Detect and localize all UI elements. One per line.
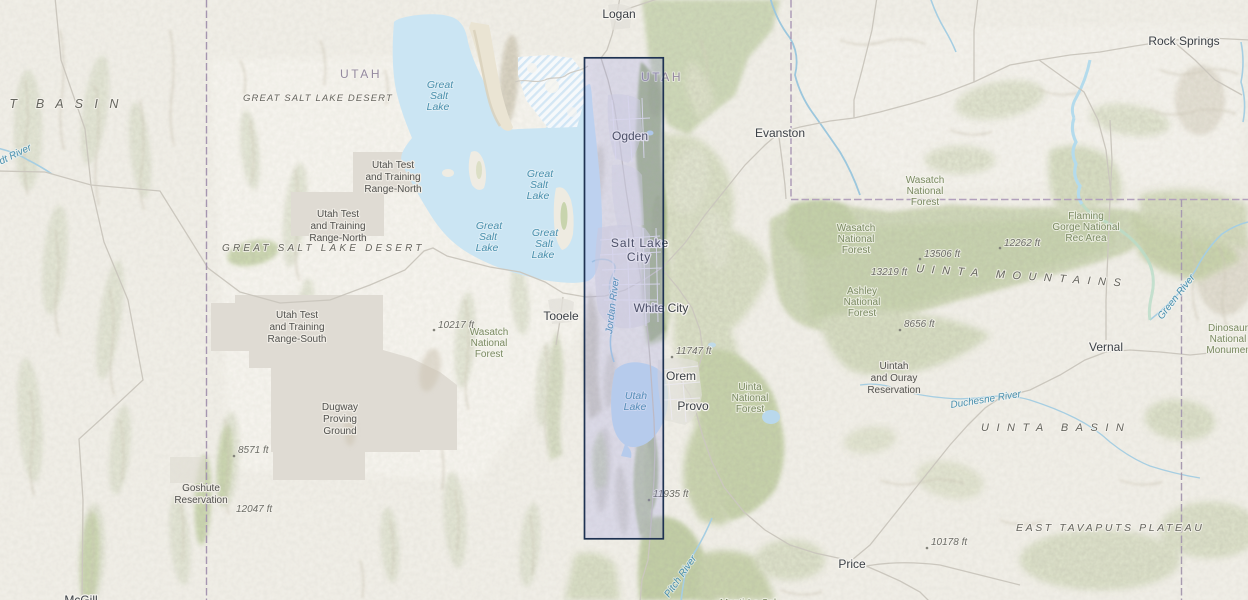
svg-text:Dinosaur: Dinosaur: [1208, 323, 1248, 334]
svg-text:GREAT SALT LAKE DESERT: GREAT SALT LAKE DESERT: [243, 93, 393, 104]
svg-text:Uintah: Uintah: [880, 361, 909, 372]
svg-text:McGill: McGill: [64, 593, 97, 600]
svg-text:Orem: Orem: [666, 369, 696, 383]
svg-text:Forest: Forest: [736, 404, 765, 415]
svg-text:and Training: and Training: [365, 172, 420, 183]
svg-text:Flaming: Flaming: [1068, 211, 1104, 222]
svg-text:Ground: Ground: [323, 426, 356, 437]
svg-text:GREAT SALT LAKE DESERT: GREAT SALT LAKE DESERT: [222, 243, 425, 254]
svg-text:Lake: Lake: [427, 101, 450, 113]
svg-text:11747 ft: 11747 ft: [676, 346, 713, 357]
svg-text:National: National: [844, 297, 881, 308]
svg-text:Lake: Lake: [527, 190, 550, 202]
svg-text:12262 ft: 12262 ft: [1004, 238, 1041, 249]
svg-text:Vernal: Vernal: [1089, 340, 1123, 354]
svg-text:Reservation: Reservation: [867, 385, 920, 396]
svg-text:Gorge National: Gorge National: [1052, 222, 1119, 233]
svg-text:Dugway: Dugway: [322, 402, 358, 413]
svg-text:EAST TAVAPUTS PLATEAU: EAST TAVAPUTS PLATEAU: [1016, 522, 1204, 534]
svg-text:A T B A S I N: A T B A S I N: [0, 97, 122, 111]
svg-text:13219 ft: 13219 ft: [871, 267, 908, 278]
svg-text:Utah Test: Utah Test: [276, 310, 318, 321]
svg-text:Forest: Forest: [848, 308, 877, 319]
svg-text:and Ouray: and Ouray: [871, 373, 918, 384]
svg-text:Evanston: Evanston: [755, 126, 805, 140]
svg-text:Range-North: Range-North: [364, 184, 421, 195]
svg-text:National: National: [471, 338, 508, 349]
svg-text:Wasatch: Wasatch: [906, 175, 945, 186]
svg-text:13506 ft: 13506 ft: [924, 249, 961, 260]
svg-text:Lake: Lake: [532, 249, 555, 261]
svg-text:Uinta: Uinta: [738, 382, 762, 393]
svg-text:Range-South: Range-South: [268, 334, 327, 345]
svg-text:Rec Area: Rec Area: [1065, 233, 1107, 244]
svg-text:Proving: Proving: [323, 414, 357, 425]
svg-text:National: National: [732, 393, 769, 404]
svg-text:Monument: Monument: [1206, 345, 1248, 356]
svg-text:National: National: [838, 234, 875, 245]
svg-text:Forest: Forest: [842, 245, 871, 256]
svg-text:Goshute: Goshute: [182, 483, 220, 494]
svg-text:Ashley: Ashley: [847, 286, 877, 297]
svg-text:Rock Springs: Rock Springs: [1148, 34, 1219, 48]
svg-text:and Training: and Training: [310, 221, 365, 232]
svg-text:8571 ft: 8571 ft: [238, 445, 270, 456]
svg-text:National: National: [1210, 334, 1247, 345]
svg-text:Forest: Forest: [911, 197, 940, 208]
svg-text:Logan: Logan: [602, 7, 635, 21]
svg-text:UTAH: UTAH: [340, 67, 382, 81]
svg-text:Provo: Provo: [677, 399, 709, 413]
svg-text:Reservation: Reservation: [174, 495, 227, 506]
svg-text:Utah Test: Utah Test: [317, 209, 359, 220]
svg-text:Lake: Lake: [476, 242, 499, 254]
svg-text:Wasatch: Wasatch: [837, 223, 876, 234]
svg-text:10178 ft: 10178 ft: [931, 537, 968, 548]
svg-text:and Training: and Training: [269, 322, 324, 333]
svg-text:National: National: [907, 186, 944, 197]
svg-text:Price: Price: [838, 557, 866, 571]
svg-text:Range-North: Range-North: [309, 233, 366, 244]
svg-text:UINTA BASIN: UINTA BASIN: [981, 422, 1131, 434]
svg-text:Forest: Forest: [475, 349, 504, 360]
svg-text:Utah Test: Utah Test: [372, 160, 414, 171]
svg-text:Wasatch: Wasatch: [470, 327, 509, 338]
svg-text:12047 ft: 12047 ft: [236, 504, 273, 515]
svg-text:Tooele: Tooele: [543, 309, 579, 323]
svg-text:8656 ft: 8656 ft: [904, 319, 936, 330]
